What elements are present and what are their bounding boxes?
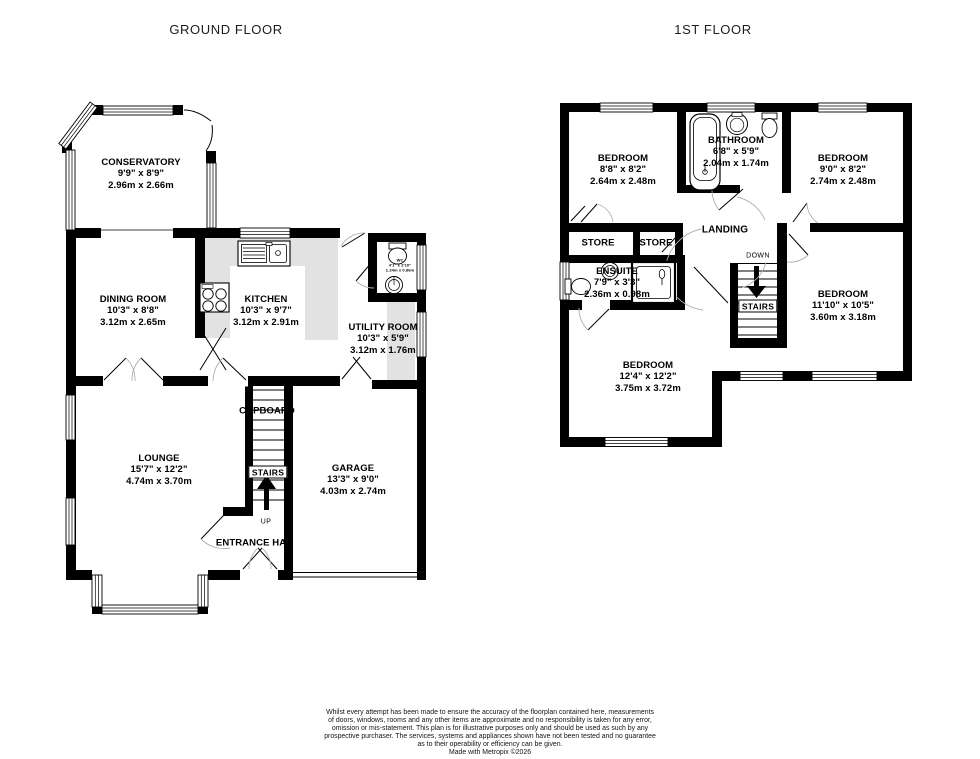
cupboard-label: CUPBOARD	[239, 405, 295, 416]
room-name: GARAGE	[320, 463, 386, 474]
room-name: UTILITY ROOM	[348, 322, 417, 333]
room-name: DINING ROOM	[100, 294, 167, 305]
bathroom-toilet-icon	[762, 113, 777, 138]
room-name: STORE	[581, 237, 614, 248]
room-label-bedroom-bottom-left: BEDROOM 12'4" x 12'2" 3.75m x 3.72m	[615, 360, 681, 394]
entrance-hall-label: ENTRANCE HAL	[216, 537, 292, 548]
disclaimer-line: of doors, windows, rooms and any other i…	[0, 717, 980, 725]
room-dims-metric: 3.12m x 1.76m	[348, 345, 417, 356]
disclaimer-line: omission or mis-statement. This plan is …	[0, 725, 980, 733]
room-name: BEDROOM	[810, 289, 876, 300]
room-dims-imperial: 13'3" x 9'0"	[320, 474, 386, 485]
disclaimer: Whilst every attempt has been made to en…	[0, 709, 980, 758]
room-dims-metric: 3.12m x 2.91m	[233, 317, 299, 328]
room-dims-imperial: 9'9" x 8'9"	[101, 168, 180, 179]
floorplan-page: GROUND FLOOR 1ST FLOOR	[0, 0, 980, 759]
room-dims-metric: 3.12m x 2.65m	[100, 317, 167, 328]
room-label-bedroom-top-right: BEDROOM 9'0" x 8'2" 2.74m x 2.48m	[810, 153, 876, 187]
room-dims-imperial: 15'7" x 12'2"	[126, 464, 192, 475]
room-dims-imperial: 9'0" x 8'2"	[810, 164, 876, 175]
room-dims-metric: 2.96m x 2.66m	[101, 180, 180, 191]
stove-icon	[200, 283, 229, 312]
store-right-label: STORE	[639, 237, 672, 248]
room-dims-metric: 4.74m x 3.70m	[126, 476, 192, 487]
room-name: BEDROOM	[590, 153, 656, 164]
room-dims-imperial: 6'8" x 5'9"	[703, 146, 769, 157]
room-dims-metric: 3.60m x 3.18m	[810, 312, 876, 323]
room-name: LANDING	[702, 224, 748, 235]
store-left-label: STORE	[581, 237, 614, 248]
room-name: BEDROOM	[810, 153, 876, 164]
landing-label: LANDING	[702, 224, 748, 235]
room-label-bedroom-top-left: BEDROOM 8'8" x 8'2" 2.64m x 2.48m	[590, 153, 656, 187]
room-name: STORE	[639, 237, 672, 248]
room-dims-imperial: 10'3" x 5'9"	[348, 333, 417, 344]
room-label-wc: WC 4'1" x 2'10" 1.24m x 0.86m	[386, 258, 414, 273]
room-name: ENSUITE	[584, 266, 650, 277]
disclaimer-line: Whilst every attempt has been made to en…	[0, 709, 980, 717]
ground-floor-title: GROUND FLOOR	[169, 22, 282, 37]
room-dims-imperial: 8'8" x 8'2"	[590, 164, 656, 175]
room-dims-imperial: 7'9" x 3'3"	[584, 277, 650, 288]
room-name: CUPBOARD	[239, 405, 295, 416]
room-label-bathroom: BATHROOM 6'8" x 5'9" 2.04m x 1.74m	[703, 135, 769, 169]
room-label-lounge: LOUNGE 15'7" x 12'2" 4.74m x 3.70m	[126, 453, 192, 487]
room-name: BEDROOM	[615, 360, 681, 371]
stairs-label-first: STAIRS	[738, 300, 777, 313]
room-dims-metric: 2.74m x 2.48m	[810, 176, 876, 187]
room-dims-metric: 2.36m x 0.98m	[584, 289, 650, 300]
room-name: LOUNGE	[126, 453, 192, 464]
room-name: ENTRANCE HAL	[216, 537, 292, 548]
stairs-label-ground: STAIRS	[248, 466, 287, 479]
metropix-credit: Made with Metropix ©2026	[0, 749, 980, 757]
room-dims-metric: 4.03m x 2.74m	[320, 486, 386, 497]
room-name: KITCHEN	[233, 294, 299, 305]
room-dims-imperial: 11'10" x 10'5"	[810, 300, 876, 311]
room-label-conservatory: CONSERVATORY 9'9" x 8'9" 2.96m x 2.66m	[101, 157, 180, 191]
room-dims-metric: 2.64m x 2.48m	[590, 176, 656, 187]
first-floor-title: 1ST FLOOR	[674, 22, 751, 37]
room-label-kitchen: KITCHEN 10'3" x 9'7" 3.12m x 2.91m	[233, 294, 299, 328]
room-label-utility-room: UTILITY ROOM 10'3" x 5'9" 3.12m x 1.76m	[348, 322, 417, 356]
room-label-dining-room: DINING ROOM 10'3" x 8'8" 3.12m x 2.65m	[100, 294, 167, 328]
room-name: BATHROOM	[703, 135, 769, 146]
sink-unit-icon	[238, 241, 290, 266]
room-name: CONSERVATORY	[101, 157, 180, 168]
wc-basin-icon	[386, 277, 403, 294]
room-label-garage: GARAGE 13'3" x 9'0" 4.03m x 2.74m	[320, 463, 386, 497]
room-dims-metric: 2.04m x 1.74m	[703, 158, 769, 169]
up-label: UP	[261, 516, 272, 527]
disclaimer-line: prospective purchaser. The services, sys…	[0, 733, 980, 741]
room-dims-metric: 3.75m x 3.72m	[615, 383, 681, 394]
room-dims-imperial: 10'3" x 9'7"	[233, 305, 299, 316]
room-dims-metric: 1.24m x 0.86m	[386, 268, 414, 273]
room-dims-imperial: 10'3" x 8'8"	[100, 305, 167, 316]
bathroom-sink-icon	[727, 113, 748, 135]
room-label-bedroom-right: BEDROOM 11'10" x 10'5" 3.60m x 3.18m	[810, 289, 876, 323]
down-label: DOWN	[746, 250, 770, 261]
room-dims-imperial: 12'4" x 12'2"	[615, 371, 681, 382]
garage-door	[293, 573, 417, 578]
room-label-ensuite: ENSUITE 7'9" x 3'3" 2.36m x 0.98m	[584, 266, 650, 300]
